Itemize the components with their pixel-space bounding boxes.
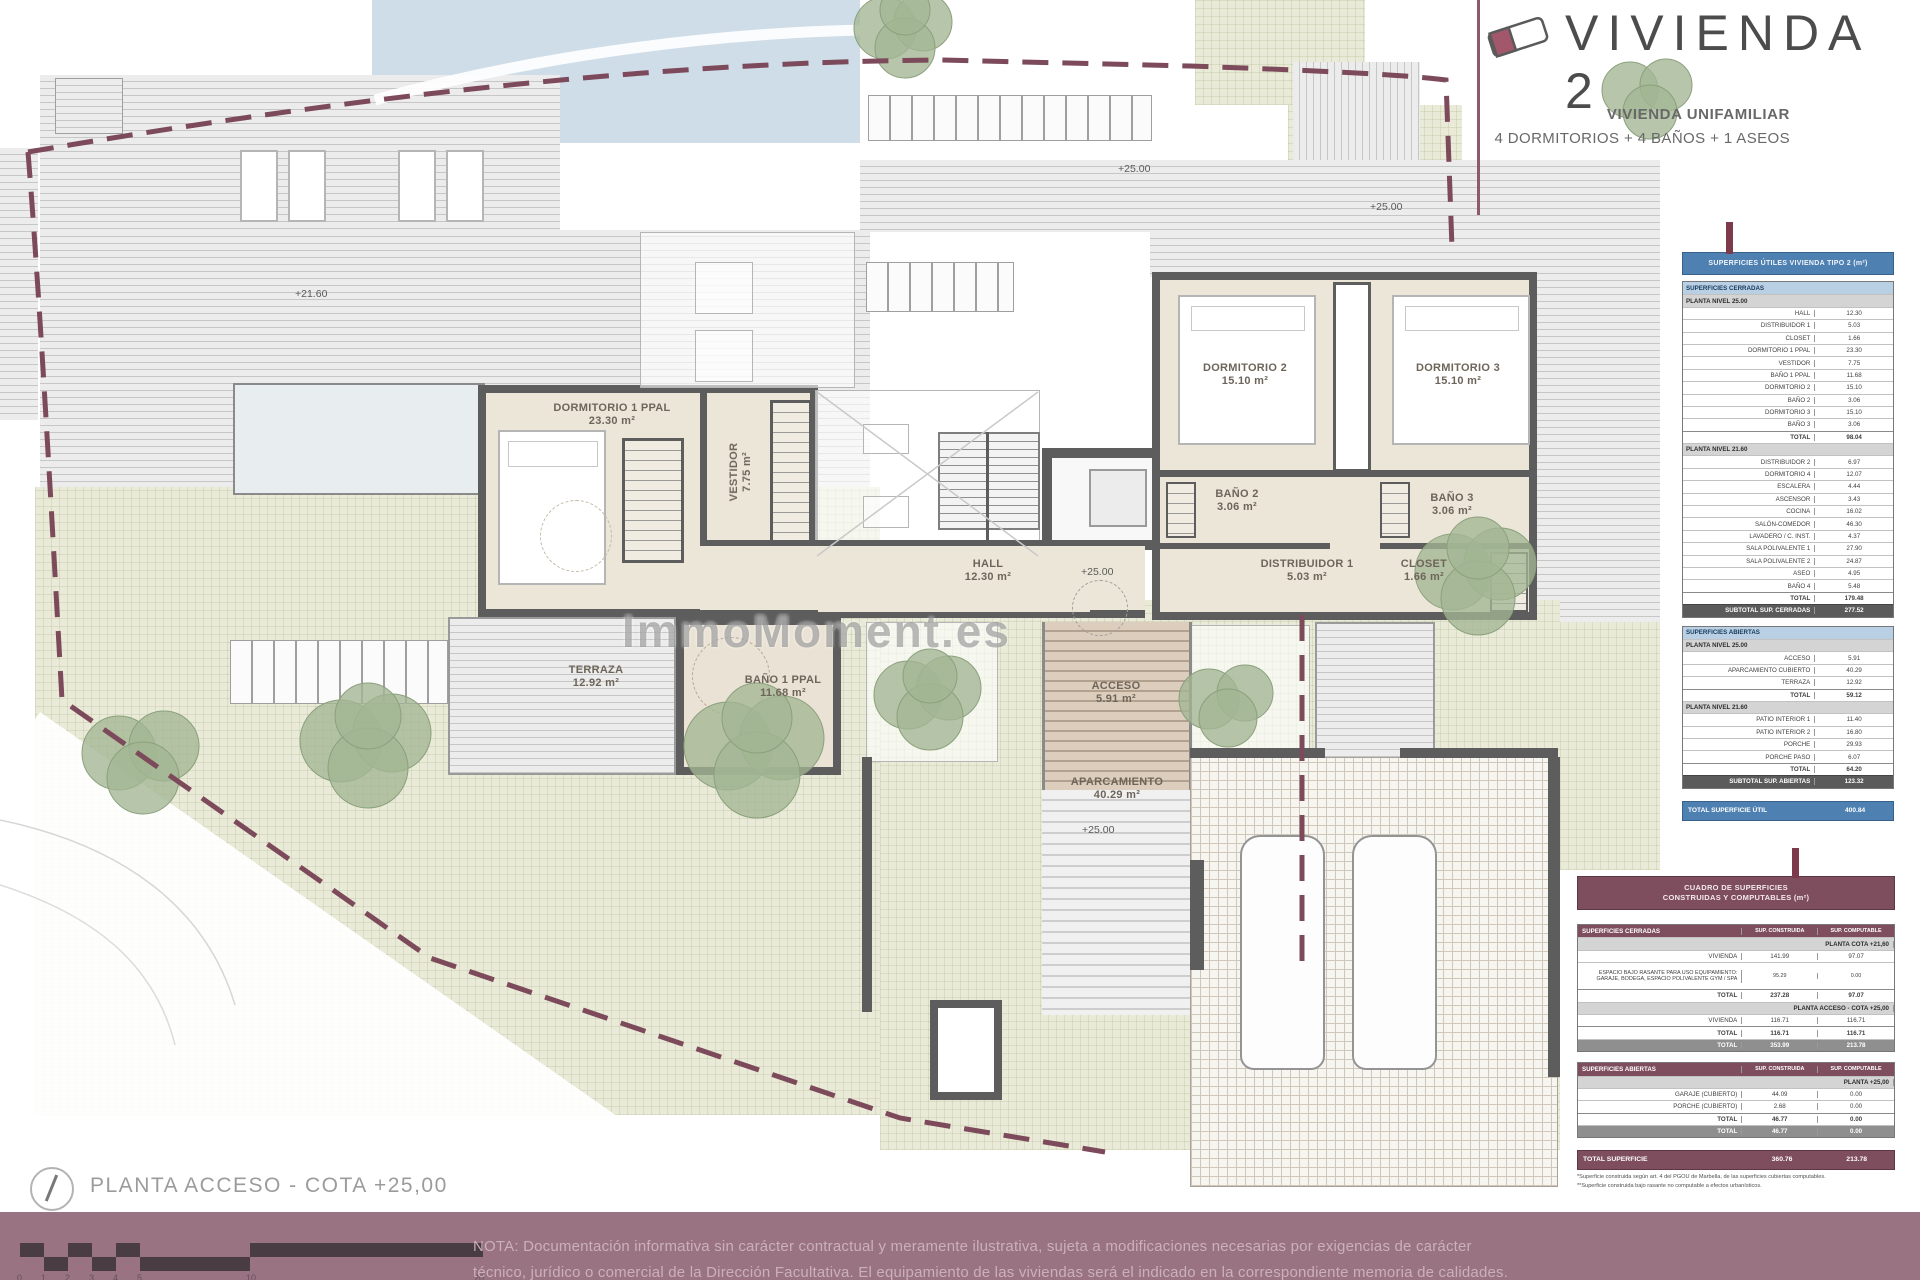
table-row: TOTAL46.770.00 (1578, 1113, 1894, 1125)
sun-lounger (240, 150, 278, 222)
elevation-mark: +21.60 (295, 288, 327, 300)
lap-pool (233, 383, 485, 495)
room-label: DORMITORIO 215.10 m² (1203, 362, 1287, 388)
table-row: APARCAMIENTO CUBIERTO40.29 (1683, 664, 1893, 676)
parking-wall (1400, 748, 1558, 758)
parking-wall (1190, 748, 1325, 758)
elevation-mark: +25.00 (1370, 201, 1402, 213)
planter-east (1190, 625, 1310, 755)
room-label: BAÑO 23.06 m² (1215, 488, 1258, 514)
room-label: DISTRIBUIDOR 15.03 m² (1261, 558, 1354, 584)
table-row: PORCHE (CUBIERTO)2.680.00 (1578, 1100, 1894, 1112)
corridor-wall (1160, 543, 1330, 549)
room-label: BAÑO 1 PPAL11.68 m² (745, 674, 821, 700)
furniture-outline (695, 330, 753, 382)
table-row: TOTAL179.48 (1683, 592, 1893, 604)
table-row: TOTAL64.20 (1683, 763, 1893, 775)
sun-lounger (398, 150, 436, 222)
table-row: SUBTOTAL SUP. CERRADAS277.52 (1683, 604, 1893, 616)
skylight (863, 424, 909, 454)
table-row: PORCHE PASO6.07 (1683, 750, 1893, 762)
table-row: TOTAL237.2897.07 (1578, 989, 1894, 1001)
areas-table: SUPERFICIES ÚTILES VIVIENDA TIPO 2 (m²) … (1682, 252, 1894, 821)
table-row: TOTAL98.04 (1683, 431, 1893, 443)
scale-bar (140, 1257, 250, 1271)
table-row: DISTRIBUIDOR 26.97 (1683, 455, 1893, 467)
deck-left-strip (0, 148, 38, 420)
pergola-slats-mid (866, 262, 1014, 312)
scale-bar (44, 1257, 68, 1271)
elevation-mark: +25.00 (1082, 824, 1114, 836)
deck-above-wing (1150, 232, 1530, 277)
table-row: SALA POLIVALENTE 127.90 (1683, 542, 1893, 554)
table-row: BAÑO 33.06 (1683, 418, 1893, 430)
table-row: PATIO INTERIOR 111.40 (1683, 713, 1893, 725)
scale-bar (116, 1243, 140, 1257)
utility-structure (930, 1000, 1002, 1100)
steps-top-left (55, 78, 123, 134)
table-row: SALA POLIVALENTE 224.87 (1683, 555, 1893, 567)
table-row: COCINA16.02 (1683, 505, 1893, 517)
scale-number: 5 (137, 1273, 142, 1280)
table-connector (1726, 222, 1733, 254)
elevation-circle (1072, 580, 1128, 636)
deck-column-top (1293, 62, 1420, 160)
room-label: DORMITORIO 315.10 m² (1416, 362, 1500, 388)
table-row: SUPERFICIES ABIERTASSUP. CONSTRUIDASUP. … (1578, 1063, 1894, 1075)
footer-note-line2: técnico, jurídico o comercial de la Dire… (473, 1264, 1893, 1280)
built-areas-title: CUADRO DE SUPERFICIES CONSTRUIDAS Y COMP… (1577, 876, 1895, 910)
retaining-wall (862, 757, 872, 1012)
room-label: VESTIDOR7.75 m² (728, 443, 754, 502)
table-row: SUPERFICIES ABIERTAS (1683, 627, 1893, 639)
watermark: ImmoMoment.es (622, 606, 1011, 656)
scale-number: 2 (65, 1273, 70, 1280)
table-row: VIVIENDA116.71116.71 (1578, 1014, 1894, 1026)
car (1352, 835, 1437, 1070)
table-row: PLANTA COTA +21,60 (1578, 937, 1894, 949)
closet-shelves (1490, 552, 1528, 612)
table-row: VIVIENDA141.9997.07 (1578, 950, 1894, 962)
furniture-outline (695, 262, 753, 314)
built-areas-table: CUADRO DE SUPERFICIES CONSTRUIDAS Y COMP… (1577, 876, 1895, 1191)
plan-number-icon (30, 1167, 74, 1211)
ramp-steps (1315, 622, 1435, 760)
table-row: SALÓN-COMEDOR46.30 (1683, 517, 1893, 529)
room-label: APARCAMIENTO40.29 m² (1071, 776, 1163, 802)
table-row: TERRAZA12.92 (1683, 676, 1893, 688)
pergola-slats-top (868, 95, 1152, 141)
areas-table-title: SUPERFICIES ÚTILES VIVIENDA TIPO 2 (m²) (1682, 252, 1894, 275)
table-row: GARAJE (CUBIERTO)44.090.00 (1578, 1088, 1894, 1100)
areas-table-total: TOTAL SUPERFICIE ÚTIL 400.84 (1682, 801, 1894, 821)
scale-number: 3 (89, 1273, 94, 1280)
footer-note-line1: NOTA: Documentación informativa sin cará… (473, 1238, 1873, 1255)
built-areas-body: SUPERFICIES ABIERTASSUP. CONSTRUIDASUP. … (1577, 1062, 1895, 1138)
table-row: PLANTA NIVEL 21.60 (1683, 701, 1893, 713)
scale-bar (250, 1243, 483, 1257)
room-label: CLOSET1.66 m² (1401, 558, 1447, 584)
table-row: TOTAL353.99213.78 (1578, 1039, 1894, 1051)
scale-number: 1 (41, 1273, 46, 1280)
table-row: ESPACIO BAJO RASANTE PARA USO EQUIPAMIEN… (1578, 962, 1894, 989)
plan-sheet: DORMITORIO 1 PPAL23.30 m² VESTIDOR7.75 m… (0, 0, 1920, 1280)
terrain-right-low (1560, 622, 1660, 870)
table-row: PORCHE29.93 (1683, 738, 1893, 750)
table-row: DORMITORIO 1 PPAL23.30 (1683, 344, 1893, 356)
sheet-subtitle-2: 4 DORMITORIOS + 4 BAÑOS + 1 ASEOS (1480, 130, 1790, 148)
staircase (938, 432, 1040, 530)
room-label: TERRAZA12.92 m² (569, 664, 624, 690)
sun-lounger (288, 150, 326, 222)
table-row: PLANTA ACCESO - COTA +25,00 (1578, 1002, 1894, 1014)
table-row: PATIO INTERIOR 216.80 (1683, 726, 1893, 738)
pergola-slats-left (230, 640, 448, 704)
sun-lounger (446, 150, 484, 222)
table-row: ASCENSOR3.43 (1683, 493, 1893, 505)
car (1240, 835, 1325, 1070)
table-row: PLANTA NIVEL 21.60 (1683, 443, 1893, 455)
sheet-title: VIVIENDA 2 (1565, 4, 1905, 120)
table-row: PLANTA NIVEL 25.00 (1683, 639, 1893, 651)
room-label: HALL12.30 m² (965, 558, 1011, 584)
acceso-walkway (1042, 622, 1192, 790)
table-row: TOTAL59.12 (1683, 689, 1893, 701)
table-row: BAÑO 1 PPAL11.68 (1683, 369, 1893, 381)
table-row: DORMITORIO 412.07 (1683, 468, 1893, 480)
room-label: ACCESO5.91 m² (1092, 680, 1141, 706)
elevator-car (1089, 469, 1147, 526)
table-row: BAÑO 23.06 (1683, 394, 1893, 406)
table-footnote: **Superficie construida bajo rasante no … (1577, 1182, 1895, 1191)
elevation-mark: +25.00 (1118, 163, 1150, 175)
table-row: DORMITORIO 315.10 (1683, 406, 1893, 418)
scale-number: 4 (113, 1273, 118, 1280)
room-label: DORMITORIO 1 PPAL23.30 m² (553, 402, 670, 428)
table-row: PLANTA +25,00 (1578, 1076, 1894, 1088)
brand-logo-icon (1478, 6, 1558, 68)
table-footnote: *Superficie construida según art. 4 del … (1577, 1173, 1895, 1182)
skylight (863, 496, 909, 528)
wardrobe-divider (1333, 282, 1371, 472)
vestidor-closet (770, 400, 812, 562)
scale-number: 0 (17, 1273, 22, 1280)
scale-bar (20, 1243, 44, 1257)
sheet-subtitle-1: VIVIENDA UNIFAMILIAR (1500, 106, 1790, 124)
table-row: VESTIDOR7.75 (1683, 356, 1893, 368)
deck-right-band (860, 160, 1660, 232)
scale-bar (68, 1243, 92, 1257)
parking-wall (1548, 757, 1560, 1077)
table-row: PLANTA NIVEL 25.00 (1683, 294, 1893, 306)
master-wardrobe (622, 438, 684, 563)
deck-right-side (1530, 232, 1660, 622)
table-row: TOTAL116.71116.71 (1578, 1026, 1894, 1038)
table-row: CLOSET1.66 (1683, 332, 1893, 344)
corridor-wall (1380, 543, 1530, 549)
scale-number: 10 (246, 1273, 256, 1280)
table-row: TOTAL46.770.00 (1578, 1125, 1894, 1137)
parking-pillar (1190, 860, 1204, 970)
plan-caption: PLANTA ACCESO - COTA +25,00 (90, 1174, 448, 1198)
table-row: HALL12.30 (1683, 307, 1893, 319)
table-row: BAÑO 45.48 (1683, 579, 1893, 591)
table-row: DISTRIBUIDOR 15.03 (1683, 319, 1893, 331)
master-rug (540, 500, 612, 572)
areas-table-body: SUPERFICIES CERRADASPLANTA NIVEL 25.00HA… (1682, 281, 1894, 618)
room-label: BAÑO 33.06 m² (1430, 492, 1473, 518)
bath2-fixture (1166, 482, 1196, 538)
bath-wall (1160, 470, 1530, 477)
bath3-fixture (1380, 482, 1410, 538)
table-row: SUPERFICIES CERRADASSUP. CONSTRUIDASUP. … (1578, 925, 1894, 937)
elevation-mark: +25.00 (1081, 566, 1113, 578)
table-connector (1792, 848, 1799, 878)
built-areas-total: TOTAL SUPERFICIE 360.76 213.78 (1577, 1150, 1895, 1170)
table-row: ACCESO5.91 (1683, 651, 1893, 663)
table-row: ASEO4.95 (1683, 567, 1893, 579)
driveway (1042, 790, 1192, 1015)
scale-bar (92, 1257, 116, 1271)
built-areas-body: SUPERFICIES CERRADASSUP. CONSTRUIDASUP. … (1577, 924, 1895, 1052)
table-row: ESCALERA4.44 (1683, 480, 1893, 492)
table-row: DORMITORIO 215.10 (1683, 381, 1893, 393)
areas-table-body: SUPERFICIES ABIERTASPLANTA NIVEL 25.00AC… (1682, 626, 1894, 789)
footer-band: 0 1 2 3 4 5 10 20 NOTA: Documentación in… (0, 1212, 1920, 1280)
table-row: LAVADERO / C. INST.4.37 (1683, 530, 1893, 542)
table-row: SUPERFICIES CERRADAS (1683, 282, 1893, 294)
table-row: SUBTOTAL SUP. ABIERTAS123.32 (1683, 775, 1893, 787)
